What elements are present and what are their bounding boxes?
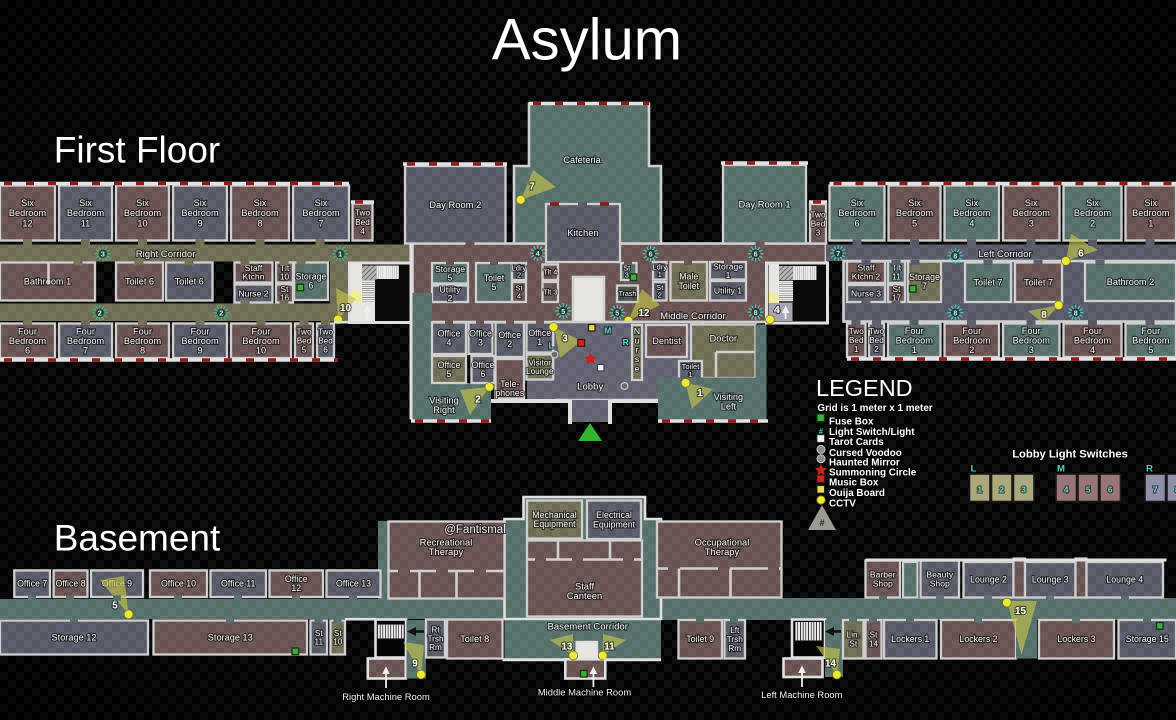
svg-text:Utility 1: Utility 1 bbox=[714, 286, 742, 296]
svg-text:Tarot Cards: Tarot Cards bbox=[829, 437, 884, 448]
svg-text:2: 2 bbox=[999, 484, 1004, 494]
svg-text:Office 7: Office 7 bbox=[17, 579, 47, 589]
svg-text:Tlt 4: Tlt 4 bbox=[543, 268, 557, 277]
svg-text:Middle Machine Room: Middle Machine Room bbox=[538, 687, 631, 698]
svg-text:ElectricalEquipment: ElectricalEquipment bbox=[593, 510, 636, 529]
svg-text:9: 9 bbox=[412, 658, 418, 669]
svg-text:Toilet 7: Toilet 7 bbox=[1024, 277, 1053, 287]
svg-text:Trash: Trash bbox=[619, 291, 637, 298]
svg-text:Lounge 4: Lounge 4 bbox=[1106, 575, 1143, 585]
svg-text:6: 6 bbox=[754, 250, 758, 259]
svg-text:Bathroom 2: Bathroom 2 bbox=[1107, 277, 1155, 287]
svg-text:St10: St10 bbox=[333, 629, 343, 647]
svg-text:Toilet 8: Toilet 8 bbox=[460, 634, 489, 644]
svg-text:LEGEND: LEGEND bbox=[816, 375, 913, 401]
svg-text:St14: St14 bbox=[869, 631, 879, 649]
svg-text:M: M bbox=[604, 326, 611, 336]
svg-text:St17: St17 bbox=[892, 285, 902, 303]
svg-text:Office 8: Office 8 bbox=[55, 579, 85, 589]
svg-text:Doctor: Doctor bbox=[709, 332, 737, 343]
svg-text:5: 5 bbox=[1086, 484, 1091, 494]
svg-text:12: 12 bbox=[639, 308, 650, 319]
svg-text:BarberShop: BarberShop bbox=[870, 569, 896, 588]
svg-text:2: 2 bbox=[475, 394, 481, 405]
svg-text:e: e bbox=[635, 364, 640, 374]
svg-text:7: 7 bbox=[529, 181, 535, 192]
svg-text:VisitorLounge: VisitorLounge bbox=[526, 358, 554, 376]
svg-text:8: 8 bbox=[953, 309, 957, 318]
svg-text:Music Box: Music Box bbox=[829, 477, 879, 488]
svg-text:Day Room 2: Day Room 2 bbox=[429, 199, 481, 210]
svg-text:Storage 12: Storage 12 bbox=[52, 633, 97, 643]
svg-text:St11: St11 bbox=[315, 629, 324, 647]
svg-text:L: L bbox=[971, 463, 977, 474]
svg-text:4: 4 bbox=[1064, 484, 1069, 494]
svg-text:Middle Corridor: Middle Corridor bbox=[660, 311, 726, 322]
svg-text:8: 8 bbox=[953, 252, 957, 261]
svg-text:M: M bbox=[1057, 463, 1065, 474]
svg-text:Kitchen: Kitchen bbox=[567, 227, 598, 238]
svg-text:CCTV: CCTV bbox=[829, 499, 856, 510]
svg-text:L: L bbox=[548, 340, 553, 350]
svg-text:Office 11: Office 11 bbox=[221, 579, 256, 589]
svg-text:2: 2 bbox=[219, 309, 223, 318]
svg-text:Dentist: Dentist bbox=[652, 336, 681, 346]
svg-text:Lockers 1: Lockers 1 bbox=[891, 634, 929, 644]
svg-text:1: 1 bbox=[338, 250, 342, 259]
svg-text:Grid is 1 meter x 1 meter: Grid is 1 meter x 1 meter bbox=[817, 403, 932, 414]
svg-text:Basement: Basement bbox=[54, 518, 221, 559]
svg-text:6: 6 bbox=[649, 250, 653, 259]
svg-text:R: R bbox=[623, 337, 629, 347]
svg-text:MaleToilet: MaleToilet bbox=[678, 272, 699, 291]
svg-text:Left Corridor: Left Corridor bbox=[978, 249, 1032, 260]
svg-text:Toilet 9: Toilet 9 bbox=[686, 634, 714, 644]
svg-text:Lockers 2: Lockers 2 bbox=[959, 634, 997, 644]
svg-text:8: 8 bbox=[754, 308, 758, 317]
svg-text:Lounge 2: Lounge 2 bbox=[970, 575, 1007, 585]
svg-text:5: 5 bbox=[561, 307, 565, 316]
svg-text:R: R bbox=[1146, 463, 1153, 474]
svg-text:StaffKtchn: StaffKtchn bbox=[243, 263, 265, 282]
svg-text:3: 3 bbox=[1021, 484, 1026, 494]
svg-text:5: 5 bbox=[615, 309, 619, 318]
svg-text:14: 14 bbox=[825, 659, 836, 670]
svg-text:7: 7 bbox=[1153, 484, 1158, 494]
svg-text:Day Room 1: Day Room 1 bbox=[738, 198, 790, 209]
svg-text:MechanicalEquipment: MechanicalEquipment bbox=[532, 510, 577, 529]
svg-text:4: 4 bbox=[774, 304, 780, 316]
svg-text:Lockers 3: Lockers 3 bbox=[1057, 634, 1095, 644]
svg-text:Toilet 6: Toilet 6 bbox=[125, 277, 154, 287]
svg-text:Office 13: Office 13 bbox=[336, 579, 371, 589]
svg-text:Basement Corridor: Basement Corridor bbox=[547, 621, 628, 632]
svg-text:7: 7 bbox=[836, 249, 840, 258]
svg-text:Right Corridor: Right Corridor bbox=[136, 249, 197, 260]
svg-text:Toilet 6: Toilet 6 bbox=[175, 277, 204, 287]
svg-text:Right Machine Room: Right Machine Room bbox=[342, 691, 430, 702]
svg-text:BeautyShop: BeautyShop bbox=[926, 569, 953, 588]
svg-text:#: # bbox=[819, 518, 824, 528]
svg-text:6: 6 bbox=[1108, 484, 1113, 494]
svg-text:Lobby Light Switches: Lobby Light Switches bbox=[1012, 448, 1128, 460]
svg-text:2: 2 bbox=[98, 309, 102, 318]
svg-text:8: 8 bbox=[1041, 310, 1047, 321]
svg-text:Nurse 3: Nurse 3 bbox=[851, 288, 881, 298]
svg-text:3: 3 bbox=[101, 250, 105, 259]
svg-text:Office 10: Office 10 bbox=[161, 579, 196, 589]
svg-text:Lounge 3: Lounge 3 bbox=[1032, 575, 1069, 585]
svg-text:Nurse 2: Nurse 2 bbox=[238, 288, 268, 298]
svg-text:Tlt 3: Tlt 3 bbox=[543, 287, 557, 296]
svg-text:10: 10 bbox=[340, 303, 351, 314]
svg-text:@Fantismal: @Fantismal bbox=[444, 524, 506, 536]
svg-text:Lobby: Lobby bbox=[577, 382, 603, 393]
svg-text:11: 11 bbox=[604, 642, 615, 653]
svg-text:5: 5 bbox=[112, 600, 118, 611]
svg-text:Left Machine Room: Left Machine Room bbox=[761, 689, 842, 700]
svg-text:1: 1 bbox=[977, 484, 982, 494]
svg-text:Tlt10: Tlt10 bbox=[280, 263, 290, 282]
svg-text:First Floor: First Floor bbox=[54, 130, 221, 171]
svg-text:Storage 13: Storage 13 bbox=[208, 633, 253, 643]
svg-text:13: 13 bbox=[561, 642, 572, 653]
svg-text:Cafeteria: Cafeteria bbox=[563, 155, 601, 165]
svg-text:VisitingRight: VisitingRight bbox=[429, 395, 458, 415]
svg-text:1: 1 bbox=[697, 388, 703, 399]
svg-text:Tlt11: Tlt11 bbox=[892, 264, 902, 282]
svg-text:Toilet 7: Toilet 7 bbox=[973, 277, 1002, 287]
svg-text:Storage 15: Storage 15 bbox=[1126, 634, 1169, 644]
svg-text:15: 15 bbox=[1015, 606, 1026, 617]
svg-text:Asylum: Asylum bbox=[492, 8, 682, 73]
svg-text:4: 4 bbox=[536, 249, 540, 258]
svg-text:3: 3 bbox=[562, 333, 568, 344]
svg-text:6: 6 bbox=[1078, 248, 1084, 259]
svg-text:Ouija Board: Ouija Board bbox=[829, 488, 885, 499]
svg-text:8: 8 bbox=[1074, 309, 1078, 318]
